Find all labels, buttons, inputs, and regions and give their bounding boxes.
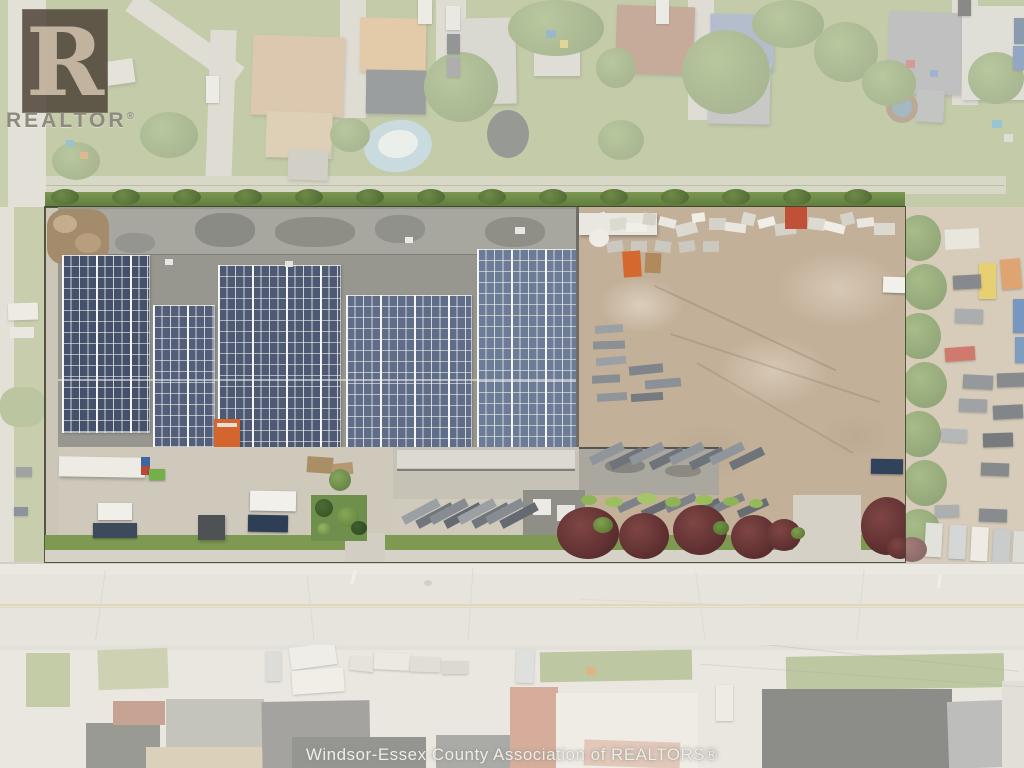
aerial-photo: R REALTOR® Windsor-Essex County Associat…: [0, 0, 1024, 768]
car: [953, 274, 982, 289]
truck: [945, 346, 976, 362]
hedge-tuft: [234, 189, 262, 205]
yard-item: [992, 120, 1002, 128]
stone-stack: [678, 240, 695, 253]
yard-item: [546, 30, 556, 38]
car: [1000, 258, 1023, 290]
roof-stain: [195, 213, 255, 247]
grass: [0, 387, 45, 427]
tree: [619, 513, 669, 559]
pole: [937, 574, 942, 588]
fence-line: [46, 185, 1004, 186]
tree: [905, 215, 941, 261]
hedge-tuft: [478, 189, 506, 205]
house: [251, 34, 346, 117]
car: [958, 0, 971, 16]
car: [959, 399, 987, 413]
van: [289, 645, 338, 670]
tree: [424, 52, 498, 122]
bush: [665, 497, 681, 507]
west-road-strip: [0, 207, 45, 562]
residential-neighborhood: [0, 0, 1024, 207]
roof-vent: [165, 259, 173, 265]
car: [14, 507, 28, 516]
car: [981, 463, 1009, 477]
car: [1014, 18, 1024, 44]
car: [442, 661, 468, 674]
loader: [149, 469, 165, 480]
tree: [905, 411, 941, 457]
sidewalk: [45, 550, 905, 562]
street: [0, 562, 1024, 645]
car: [979, 509, 1007, 523]
car: [93, 523, 137, 538]
tree: [905, 537, 927, 562]
house: [366, 69, 427, 114]
car: [992, 529, 1011, 562]
tree: [596, 48, 636, 88]
tree: [598, 120, 644, 160]
roof-vent: [285, 261, 293, 267]
car: [16, 467, 32, 477]
solar-array: [346, 295, 472, 451]
tree: [508, 0, 604, 56]
stone-stack: [654, 240, 671, 253]
tree: [682, 30, 770, 114]
hedge-tuft: [539, 189, 567, 205]
shrub: [315, 499, 333, 517]
canopy-tent: [944, 228, 979, 250]
hedge-tuft: [844, 189, 872, 205]
realtor-logo-letter: R: [22, 9, 108, 113]
roof-edge: [576, 207, 579, 447]
car: [206, 76, 219, 103]
roof-stain: [275, 217, 355, 247]
shed: [915, 89, 945, 122]
stone-stack: [703, 241, 719, 252]
house: [287, 149, 328, 180]
hedge-tuft: [661, 189, 689, 205]
center-line: [0, 604, 1024, 606]
shrub: [317, 523, 331, 535]
road: [0, 207, 14, 562]
tree: [905, 460, 947, 506]
stone-stack: [642, 212, 656, 225]
photo-caption: Windsor-Essex County Association of REAL…: [0, 745, 1024, 765]
car: [447, 34, 460, 54]
truck: [1015, 337, 1024, 363]
round-pool: [487, 110, 529, 158]
steel-stack: [592, 374, 620, 383]
bush: [791, 527, 805, 539]
solar-array: [62, 255, 150, 433]
car: [266, 651, 281, 681]
car: [979, 263, 996, 299]
hedge-tuft: [173, 189, 201, 205]
car: [410, 656, 441, 672]
stone-stack: [692, 212, 706, 223]
truck: [1013, 299, 1024, 333]
realtor-logo: R: [22, 9, 108, 113]
car: [941, 428, 968, 442]
car: [446, 6, 460, 30]
yard-item: [80, 152, 88, 159]
car: [716, 685, 733, 721]
bush: [723, 497, 739, 506]
roof-conduit: [397, 469, 575, 471]
tree: [557, 507, 619, 559]
hedge-tuft: [600, 189, 628, 205]
grass: [97, 648, 168, 690]
bush: [637, 493, 657, 504]
roof-vent: [405, 237, 413, 243]
car: [447, 57, 460, 77]
pallet-crate: [644, 253, 661, 274]
car: [1013, 46, 1024, 70]
car: [418, 0, 432, 24]
neighboring-car-lot: [905, 207, 1024, 562]
car: [997, 373, 1024, 388]
hedge-tuft: [356, 189, 384, 205]
bush: [695, 495, 713, 505]
manhole: [424, 580, 432, 586]
car: [963, 374, 994, 390]
truck: [250, 491, 296, 512]
gravel-patch: [53, 215, 77, 233]
hedgerow: [45, 192, 905, 207]
pallet-crate: [306, 456, 333, 474]
car: [993, 404, 1024, 420]
tank: [589, 229, 609, 247]
container: [785, 207, 807, 229]
trailer: [59, 456, 145, 477]
hedge-tuft: [417, 189, 445, 205]
shrub: [351, 521, 367, 535]
alley-path: [205, 30, 236, 183]
solar-array: [477, 249, 577, 449]
car: [1012, 531, 1024, 562]
building-roof: [113, 701, 165, 725]
trailer: [10, 327, 34, 338]
dumpster: [217, 423, 237, 427]
hedge-tuft: [112, 189, 140, 205]
realtor-wordmark: REALTOR®: [6, 109, 146, 133]
hedge-tuft: [295, 189, 323, 205]
crack: [695, 572, 705, 639]
yard-item: [586, 667, 596, 675]
tree: [905, 264, 947, 310]
road: [0, 564, 1024, 574]
hedge-tuft: [783, 189, 811, 205]
bush: [593, 517, 613, 533]
yard-item: [1004, 134, 1013, 142]
steel-stack: [593, 340, 625, 349]
car: [248, 515, 288, 533]
tree: [330, 118, 370, 152]
car: [349, 656, 374, 672]
roof-stain: [375, 215, 425, 243]
car: [970, 527, 989, 562]
hedge-tuft: [722, 189, 750, 205]
bush: [581, 495, 597, 505]
car: [924, 523, 943, 558]
car: [871, 459, 903, 475]
car: [935, 505, 959, 518]
car: [515, 649, 534, 684]
truck: [8, 302, 39, 320]
orange-tarp: [622, 250, 642, 277]
tree: [752, 0, 824, 48]
grass: [540, 650, 693, 683]
grass: [26, 653, 70, 707]
shed: [198, 515, 225, 540]
tree: [329, 469, 351, 491]
roof-conduit: [58, 379, 577, 381]
car: [983, 432, 1013, 447]
center-line: [0, 607, 1024, 608]
yard-item: [906, 60, 915, 68]
bush: [749, 499, 763, 508]
solar-array: [153, 305, 215, 447]
car: [98, 503, 132, 520]
subject-property: [45, 207, 905, 562]
tree: [905, 313, 941, 359]
car: [656, 0, 669, 24]
roof-vent: [515, 227, 525, 234]
yard-item: [930, 70, 938, 77]
van: [291, 667, 345, 695]
gravel-patch: [75, 233, 101, 253]
bush: [605, 497, 623, 507]
bush: [713, 521, 729, 535]
tree: [905, 362, 947, 408]
truck-cab: [141, 457, 150, 466]
realtor-watermark: R REALTOR®: [0, 0, 150, 150]
stone-stack: [874, 223, 895, 235]
house: [360, 17, 427, 72]
yard-item: [560, 40, 568, 48]
roof-stain: [115, 233, 155, 253]
car: [883, 276, 905, 293]
hedge-tuft: [51, 189, 79, 205]
front-roof: [397, 450, 575, 468]
stone-stack: [709, 218, 726, 230]
stone-stack: [609, 217, 627, 231]
van: [374, 652, 411, 671]
car: [948, 525, 967, 560]
car: [955, 309, 983, 324]
